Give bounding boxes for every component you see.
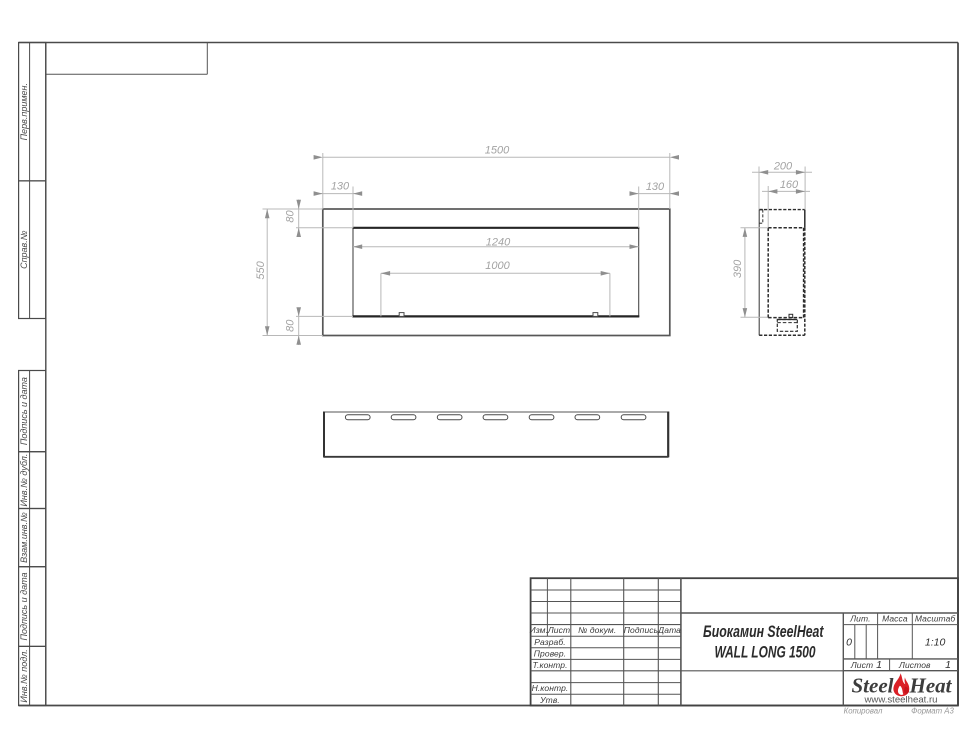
svg-text:80: 80	[285, 319, 297, 332]
svg-text:1000: 1000	[485, 260, 510, 272]
svg-text:Перв.примен.: Перв.примен.	[19, 83, 29, 140]
svg-text:Подпись и дата: Подпись и дата	[19, 572, 29, 640]
svg-text:130: 130	[331, 181, 350, 193]
svg-text:Масштаб: Масштаб	[915, 614, 957, 624]
svg-text:390: 390	[732, 259, 744, 278]
svg-text:Подпись: Подпись	[624, 625, 658, 635]
svg-text:Биокамин SteelHeat: Биокамин SteelHeat	[703, 622, 824, 641]
svg-text:Т.контр.: Т.контр.	[532, 660, 567, 670]
svg-text:Подпись и дата: Подпись и дата	[19, 377, 29, 445]
svg-text:Инв.№ подл.: Инв.№ подл.	[19, 649, 29, 702]
svg-text:Изм.: Изм.	[530, 625, 549, 635]
svg-text:160: 160	[780, 179, 799, 191]
svg-text:200: 200	[773, 161, 793, 173]
svg-text:Н.контр.: Н.контр.	[532, 683, 569, 693]
svg-text:550: 550	[255, 260, 267, 279]
svg-text:0: 0	[846, 637, 852, 649]
svg-text:Провер.: Провер.	[534, 648, 566, 658]
svg-text:Утв.: Утв.	[539, 695, 560, 705]
svg-text:Копировал: Копировал	[844, 707, 883, 716]
svg-text:1240: 1240	[486, 236, 511, 248]
svg-text:Взам.инв.№: Взам.инв.№	[19, 512, 29, 563]
svg-text:Масса: Масса	[882, 614, 908, 624]
svg-text:Лист: Лист	[547, 625, 570, 635]
svg-text:№ докум.: № докум.	[578, 625, 616, 635]
svg-text:www.steelheat.ru: www.steelheat.ru	[863, 695, 937, 706]
svg-text:Листов: Листов	[898, 660, 931, 670]
svg-text:Формат А3: Формат А3	[911, 707, 954, 716]
svg-text:WALL LONG 1500: WALL LONG 1500	[715, 643, 816, 662]
svg-text:Дата: Дата	[657, 625, 681, 635]
svg-text:1: 1	[876, 659, 882, 671]
svg-text:1: 1	[945, 659, 951, 671]
svg-text:1500: 1500	[485, 145, 510, 157]
svg-text:1:10: 1:10	[925, 637, 946, 649]
svg-text:Лит.: Лит.	[849, 614, 870, 624]
svg-text:80: 80	[285, 210, 297, 223]
svg-text:Справ.№: Справ.№	[19, 230, 29, 269]
svg-text:Разраб.: Разраб.	[534, 637, 565, 647]
svg-text:130: 130	[646, 181, 665, 193]
svg-text:Лист: Лист	[850, 660, 873, 670]
svg-text:Инв.№ дубл.: Инв.№ дубл.	[19, 454, 29, 507]
